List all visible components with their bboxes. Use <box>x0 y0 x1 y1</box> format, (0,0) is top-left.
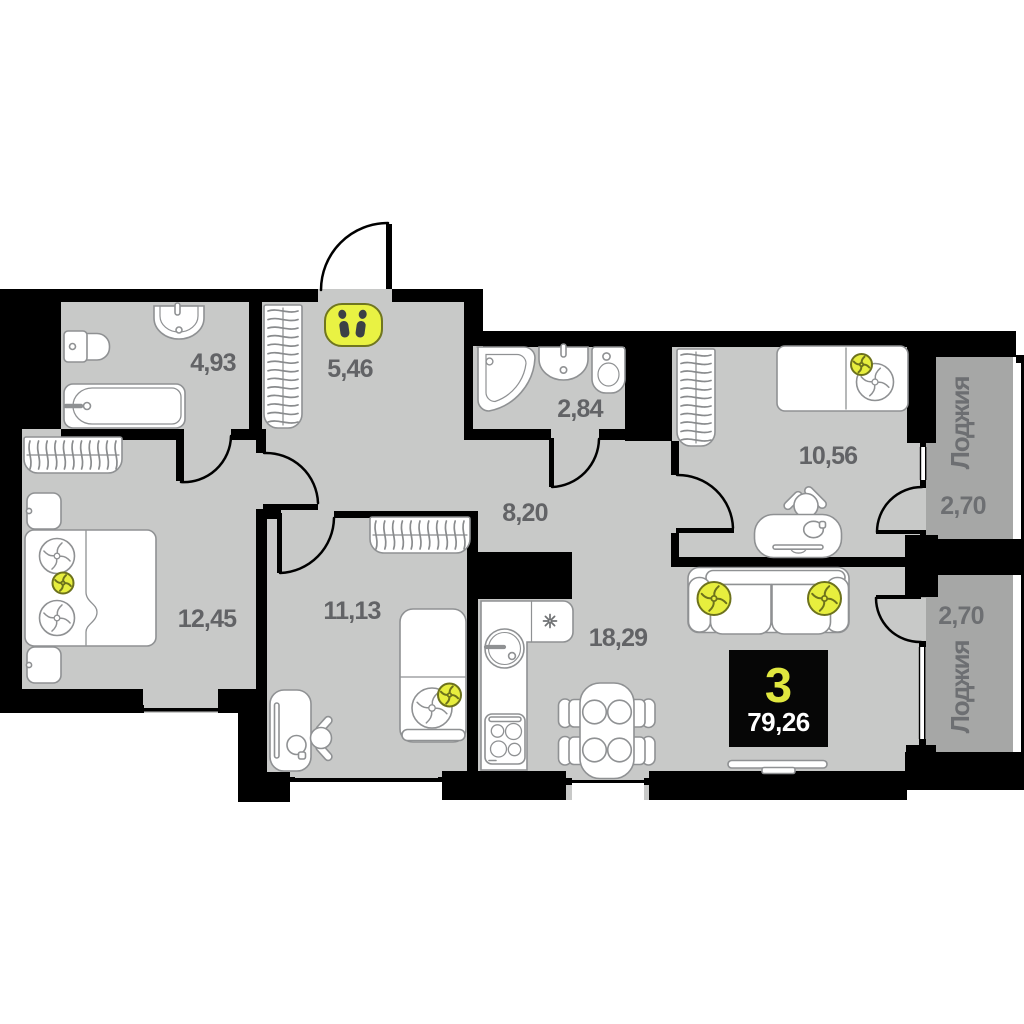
svg-text:Лоджия: Лоджия <box>945 641 975 734</box>
svg-text:12,45: 12,45 <box>178 605 237 633</box>
svg-text:11,13: 11,13 <box>323 597 380 625</box>
svg-text:79,26: 79,26 <box>747 707 810 737</box>
svg-text:8,20: 8,20 <box>502 499 547 527</box>
svg-text:18,29: 18,29 <box>589 624 648 652</box>
svg-text:2,84: 2,84 <box>557 395 603 423</box>
svg-text:Лоджия: Лоджия <box>945 377 975 470</box>
svg-text:4,93: 4,93 <box>190 349 235 377</box>
svg-text:5,46: 5,46 <box>327 355 372 383</box>
svg-text:2,70: 2,70 <box>938 602 983 630</box>
svg-text:10,56: 10,56 <box>799 442 858 470</box>
svg-text:3: 3 <box>765 659 792 713</box>
svg-text:2,70: 2,70 <box>940 492 985 520</box>
